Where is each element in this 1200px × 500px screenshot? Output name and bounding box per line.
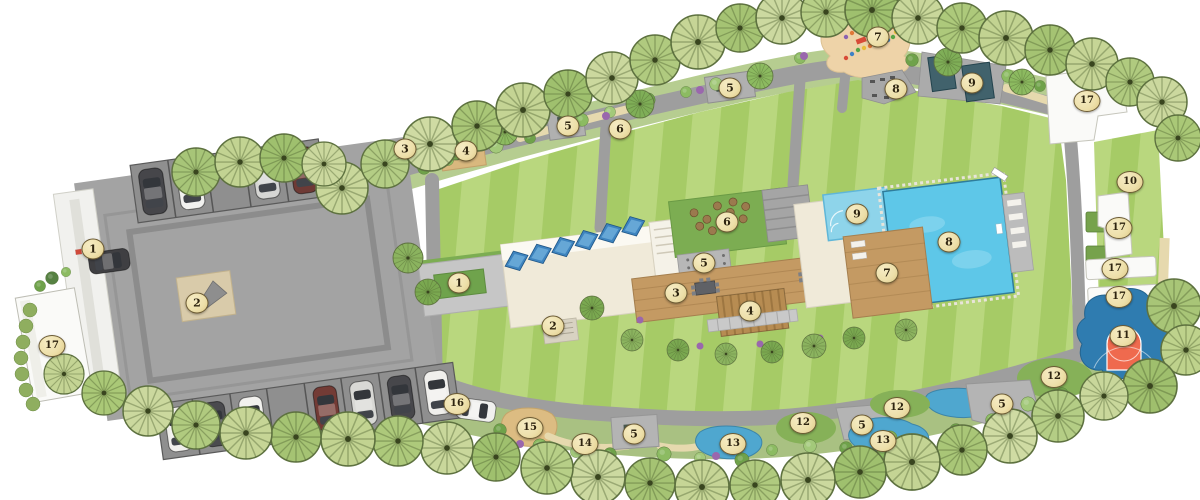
map-marker-5[interactable]: 5 — [719, 78, 742, 99]
map-marker-7[interactable]: 7 — [876, 263, 899, 284]
map-marker-17[interactable]: 17 — [1074, 90, 1101, 112]
map-marker-12[interactable]: 12 — [1041, 366, 1068, 388]
map-marker-4[interactable]: 4 — [455, 141, 478, 162]
map-marker-6[interactable]: 6 — [609, 119, 632, 140]
map-marker-5[interactable]: 5 — [623, 424, 646, 445]
map-marker-9[interactable]: 9 — [846, 204, 869, 225]
map-marker-4[interactable]: 4 — [739, 301, 762, 322]
map-marker-17[interactable]: 17 — [39, 335, 66, 357]
map-marker-3[interactable]: 3 — [394, 139, 417, 160]
map-marker-12[interactable]: 12 — [790, 412, 817, 434]
map-marker-5[interactable]: 5 — [693, 253, 716, 274]
map-marker-8[interactable]: 8 — [938, 232, 961, 253]
map-marker-1[interactable]: 1 — [448, 273, 471, 294]
map-marker-8[interactable]: 8 — [885, 79, 908, 100]
map-marker-17[interactable]: 17 — [1106, 217, 1133, 239]
map-marker-5[interactable]: 5 — [851, 415, 874, 436]
map-marker-13[interactable]: 13 — [720, 433, 747, 455]
marker-layer: 1217345657891710171717111251251312135141… — [0, 0, 1200, 500]
map-marker-13[interactable]: 13 — [870, 430, 897, 452]
map-marker-1[interactable]: 1 — [82, 239, 105, 260]
map-marker-5[interactable]: 5 — [991, 394, 1014, 415]
map-marker-12[interactable]: 12 — [884, 397, 911, 419]
map-marker-17[interactable]: 17 — [1102, 258, 1129, 280]
map-marker-16[interactable]: 16 — [444, 393, 471, 415]
map-marker-2[interactable]: 2 — [186, 293, 209, 314]
site-plan-stage: 1217345657891710171717111251251312135141… — [0, 0, 1200, 500]
map-marker-6[interactable]: 6 — [716, 212, 739, 233]
map-marker-10[interactable]: 10 — [1117, 171, 1144, 193]
map-marker-14[interactable]: 14 — [572, 433, 599, 455]
map-marker-17[interactable]: 17 — [1106, 286, 1133, 308]
map-marker-2[interactable]: 2 — [542, 316, 565, 337]
map-marker-15[interactable]: 15 — [517, 417, 544, 439]
map-marker-11[interactable]: 11 — [1110, 325, 1137, 347]
map-marker-5[interactable]: 5 — [557, 116, 580, 137]
map-marker-3[interactable]: 3 — [665, 283, 688, 304]
map-marker-9[interactable]: 9 — [961, 73, 984, 94]
map-marker-7[interactable]: 7 — [867, 27, 890, 48]
